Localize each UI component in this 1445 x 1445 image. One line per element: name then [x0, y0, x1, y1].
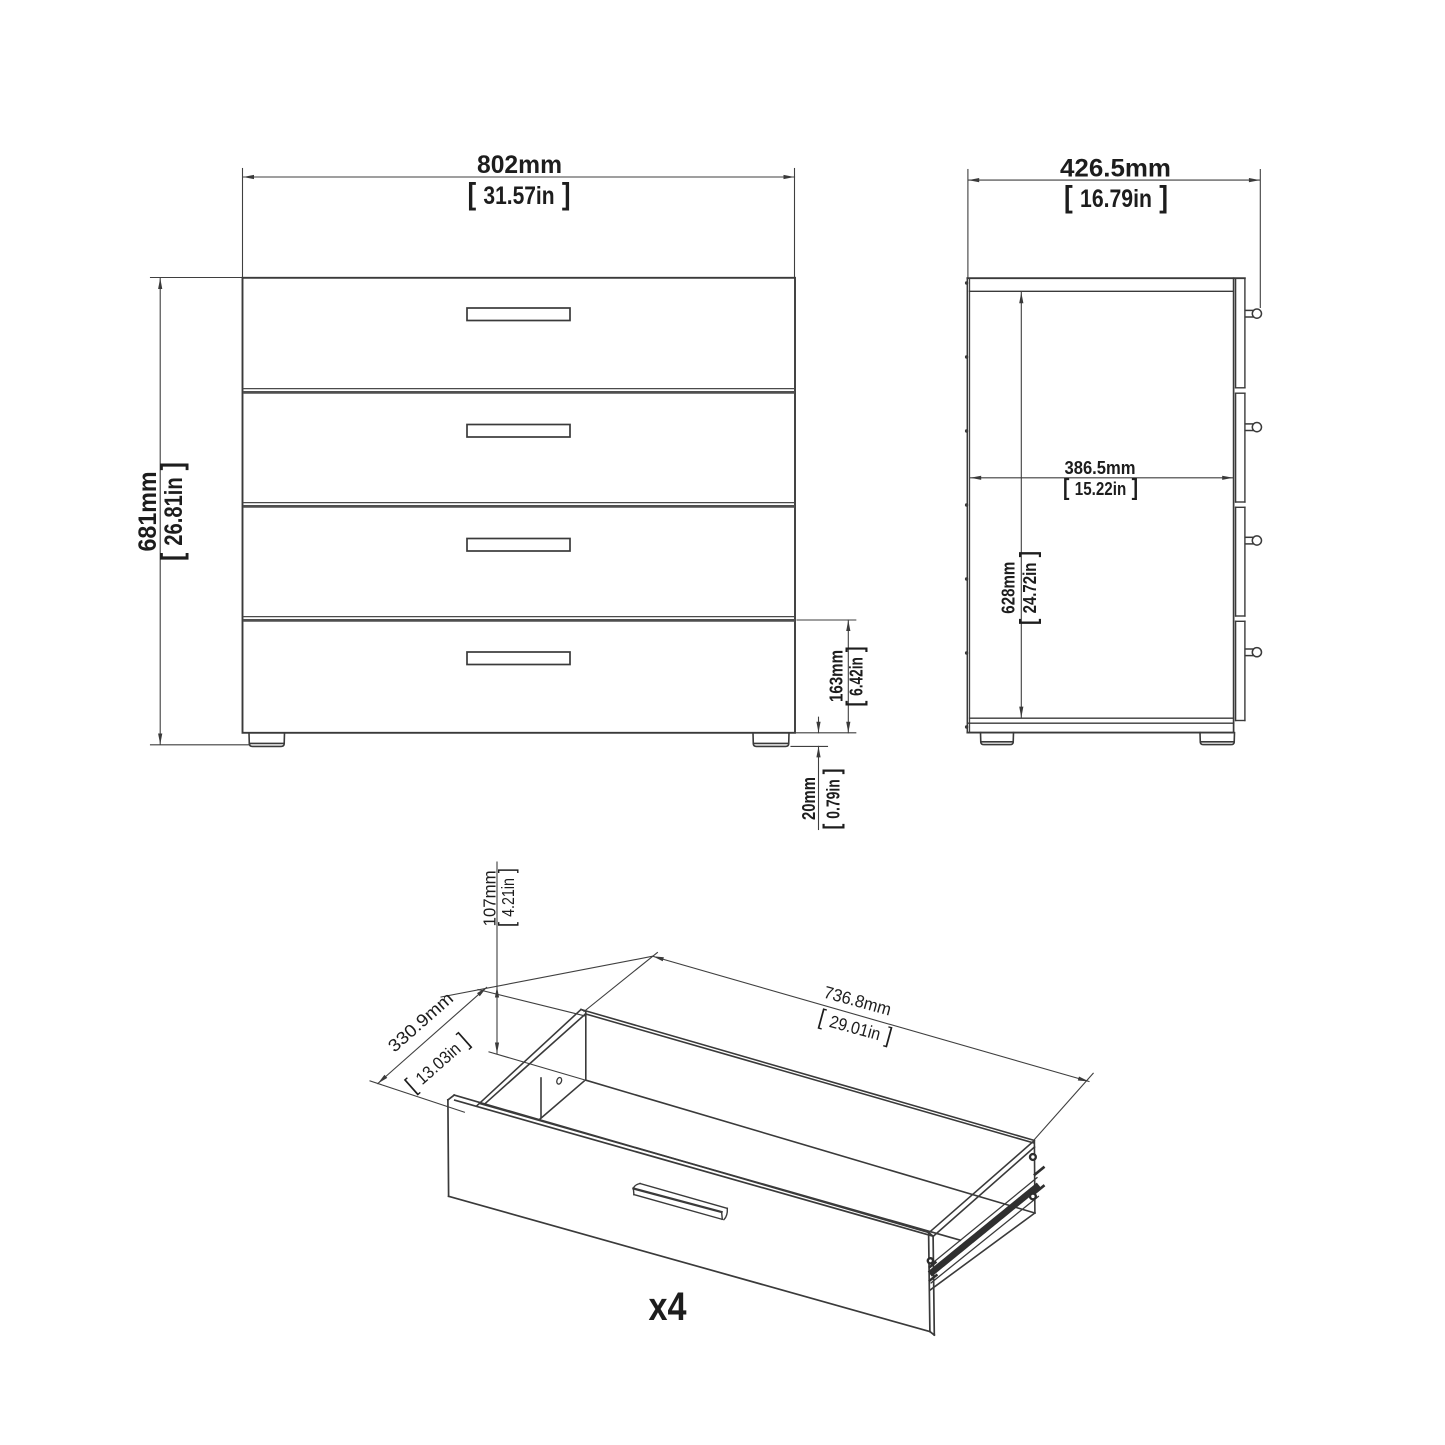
svg-text:[ 6.42in ]: [ 6.42in ] [842, 647, 868, 707]
svg-text:[ 31.57in ]: [ 31.57in ] [468, 176, 571, 211]
svg-text:802mm: 802mm [477, 151, 562, 179]
svg-text:[ 15.22in ]: [ 15.22in ] [1063, 474, 1138, 500]
svg-text:x4: x4 [649, 1285, 688, 1329]
svg-text:[ 26.81in ]: [ 26.81in ] [154, 462, 189, 561]
svg-text:20mm: 20mm [798, 777, 819, 820]
svg-text:[ 24.72in ]: [ 24.72in ] [1015, 551, 1041, 625]
svg-text:[ 4.21in ]: [ 4.21in ] [494, 868, 519, 927]
svg-text:[ 16.79in ]: [ 16.79in ] [1064, 179, 1168, 214]
svg-text:386.5mm: 386.5mm [1065, 457, 1136, 478]
svg-text:681mm: 681mm [134, 472, 162, 552]
svg-text:[ 0.79in ]: [ 0.79in ] [819, 769, 845, 830]
svg-text:628mm: 628mm [998, 562, 1019, 614]
